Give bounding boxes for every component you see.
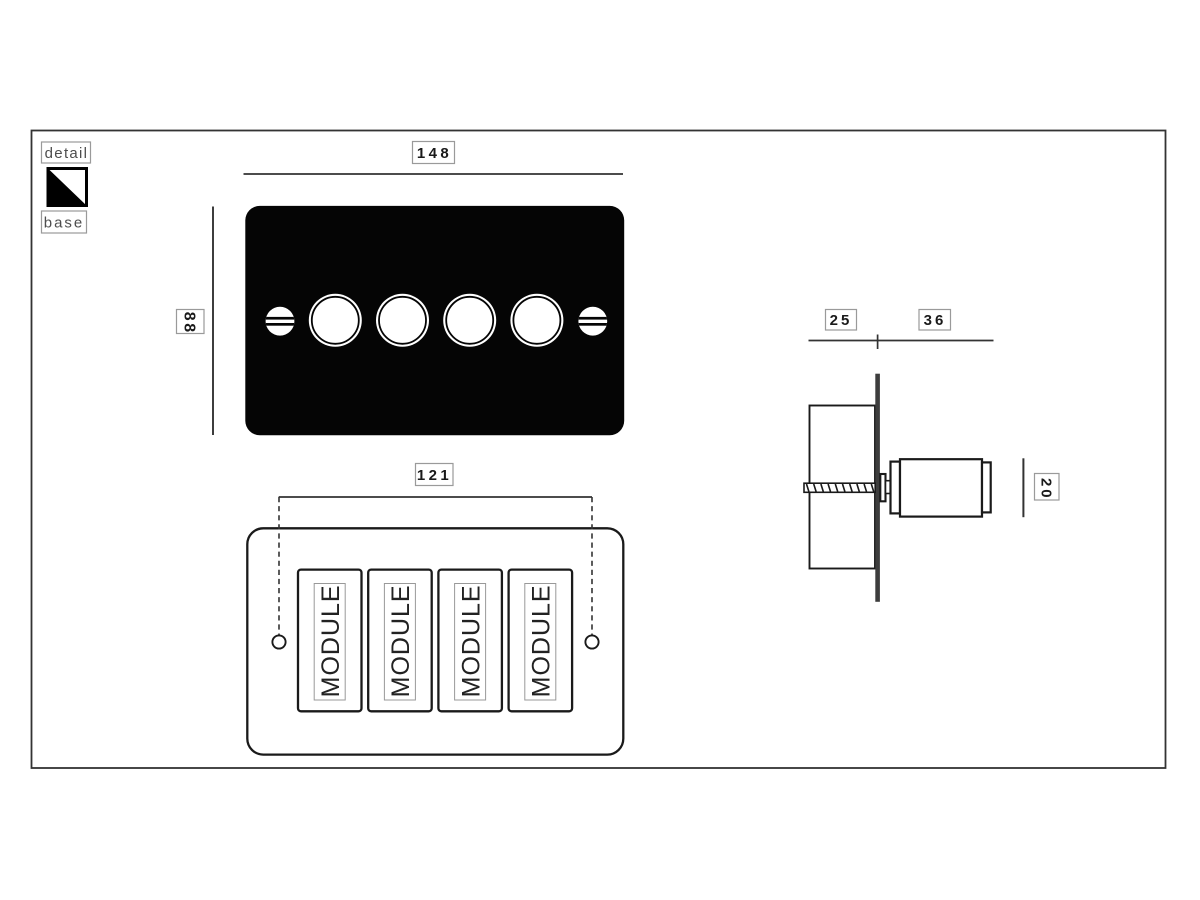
- svg-text:121: 121: [417, 467, 452, 484]
- svg-text:20: 20: [1037, 478, 1054, 501]
- svg-text:88: 88: [181, 312, 198, 335]
- svg-text:MODULE: MODULE: [317, 584, 345, 697]
- svg-text:148: 148: [417, 145, 452, 162]
- svg-text:25: 25: [830, 312, 853, 329]
- svg-text:detail: detail: [45, 145, 89, 162]
- svg-text:MODULE: MODULE: [387, 584, 415, 697]
- svg-text:base: base: [44, 215, 85, 232]
- svg-text:MODULE: MODULE: [528, 584, 556, 697]
- svg-text:MODULE: MODULE: [457, 584, 485, 697]
- svg-text:36: 36: [924, 312, 947, 329]
